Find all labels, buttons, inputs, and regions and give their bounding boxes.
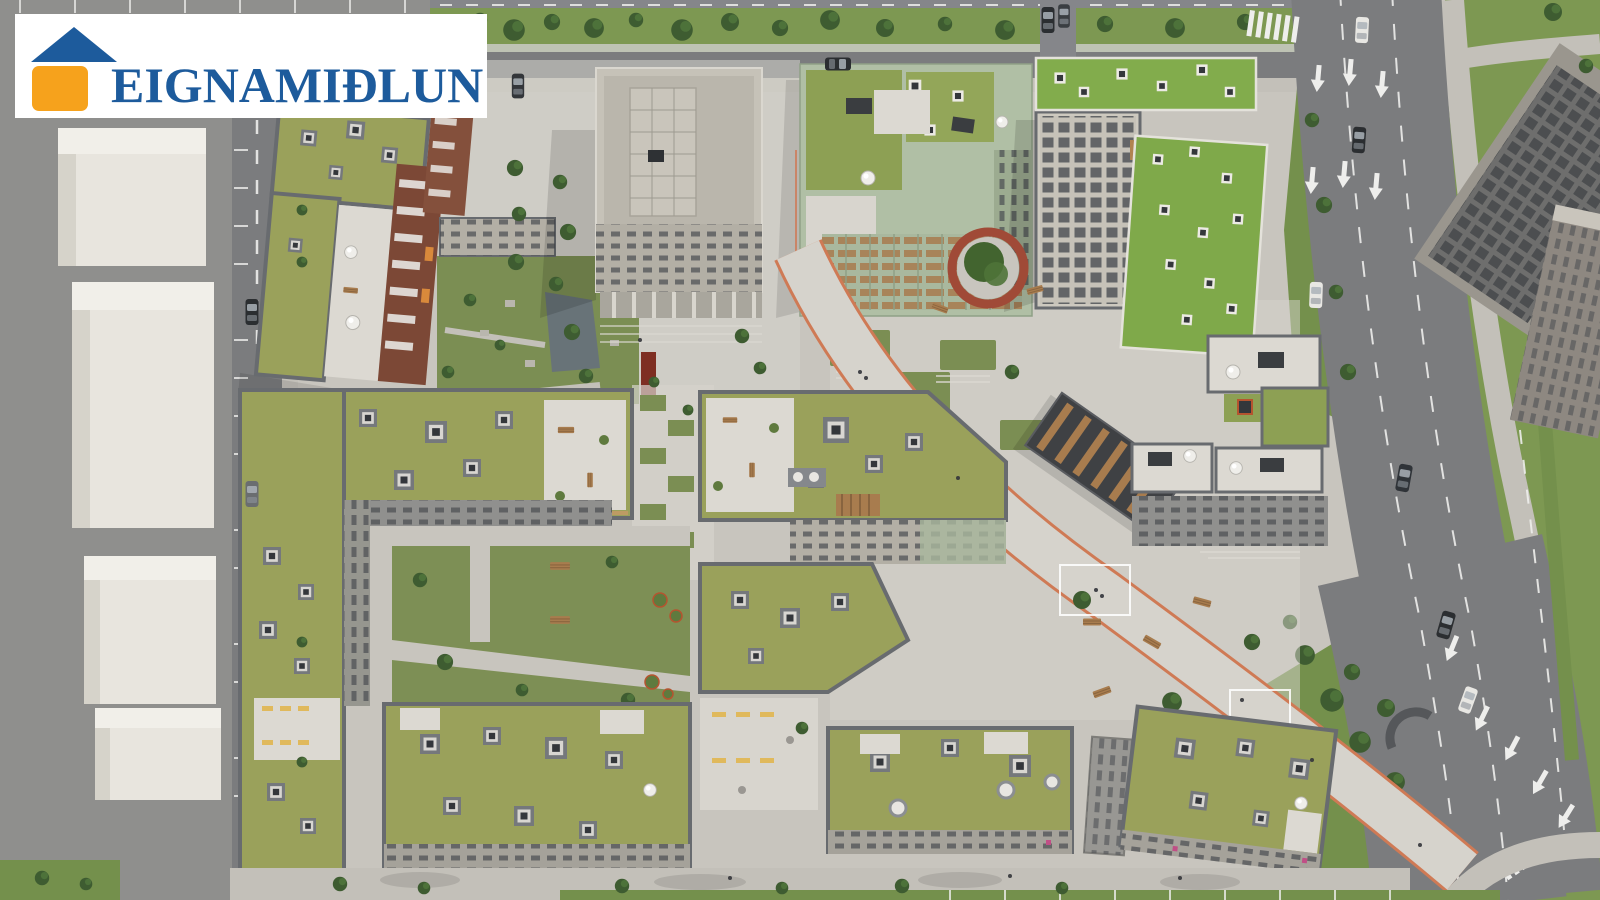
community-deck: [700, 698, 818, 810]
tower-grid-facade: [1040, 116, 1136, 304]
bright-green-roof-slab-north: [1036, 58, 1256, 110]
roof-vent: [648, 150, 664, 162]
scene-rendering: [0, 0, 1600, 900]
corner-grass-patch: [0, 860, 120, 900]
house-roof-shape: [31, 27, 117, 62]
warehouse-4: [95, 708, 221, 800]
aerial-render-screenshot: EIGNAMIÐLUN: [0, 0, 1600, 900]
warehouse-2: [72, 282, 214, 528]
bottom-slab-east: [1120, 707, 1336, 874]
warehouse-3: [84, 556, 216, 704]
sage-roof-terrace-1: [874, 90, 930, 134]
warehouse-1: [58, 128, 206, 266]
vent-plate: [788, 468, 826, 487]
house-body-shape: [32, 66, 88, 111]
office-colonnade: [600, 292, 762, 318]
courtyard-garden: [370, 526, 690, 716]
perimeter-west-slab-roof: [240, 390, 344, 882]
center-roof-terrace: [706, 398, 794, 512]
roof-pergola: [836, 494, 880, 516]
bright-green-roof-slab-east: [1121, 136, 1267, 357]
south-grass-strip: [560, 890, 1500, 900]
bike-path: [430, 44, 1335, 52]
perimeter-block: [240, 390, 690, 882]
logo-banner: EIGNAMIÐLUN: [15, 14, 487, 118]
house-logo-icon: [29, 26, 119, 110]
brand-name: EIGNAMIÐLUN: [111, 60, 483, 110]
roof-shed: [846, 98, 872, 114]
bottom-slab-center: [828, 728, 1072, 854]
south-slab-building: [384, 704, 690, 868]
